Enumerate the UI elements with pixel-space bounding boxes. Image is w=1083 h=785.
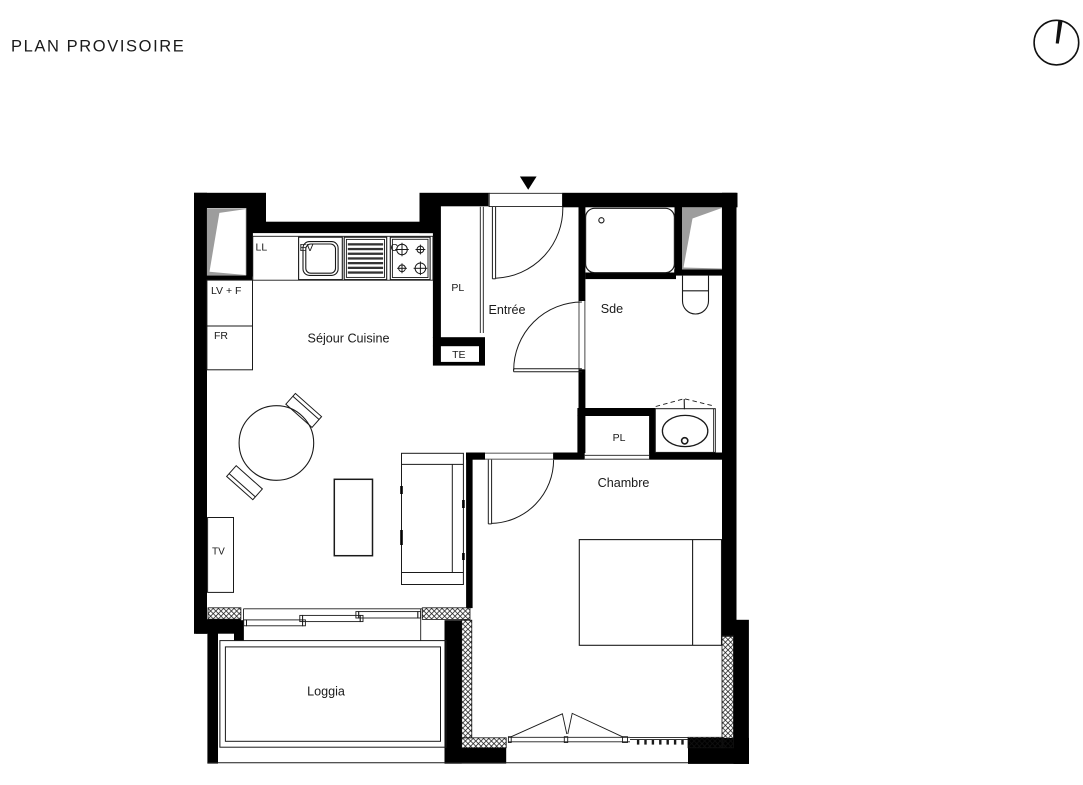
svg-text:PL: PL [613,432,626,444]
svg-text:FR: FR [214,330,228,342]
svg-text:Séjour Cuisine: Séjour Cuisine [308,332,390,346]
svg-text:C: C [391,242,399,254]
svg-text:PLAN PROVISOIRE: PLAN PROVISOIRE [11,38,185,56]
svg-text:PL: PL [451,282,464,294]
svg-text:LL: LL [256,242,268,254]
svg-text:Sde: Sde [601,302,623,316]
svg-text:TE: TE [452,349,465,361]
svg-text:EV: EV [300,242,314,254]
svg-text:LV + F: LV + F [211,285,241,297]
svg-text:Entrée: Entrée [488,303,525,317]
svg-text:TV: TV [212,547,225,558]
svg-text:Loggia: Loggia [307,685,345,699]
svg-text:Chambre: Chambre [598,476,650,490]
